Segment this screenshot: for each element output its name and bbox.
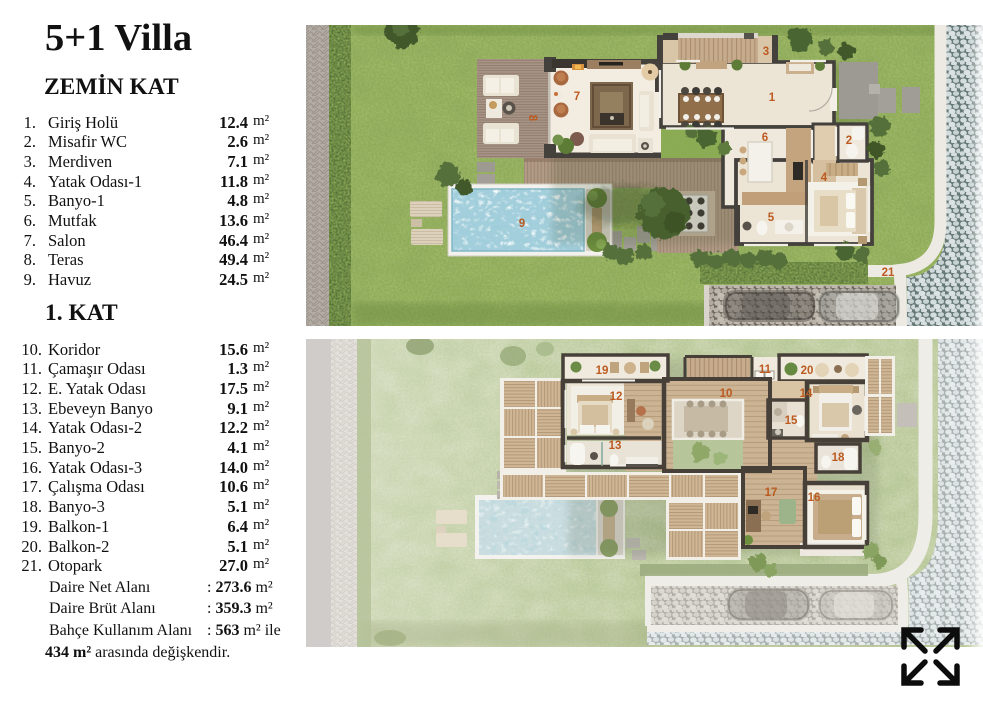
svg-text:7: 7 xyxy=(574,91,580,103)
svg-text:19: 19 xyxy=(596,365,609,377)
svg-text:4: 4 xyxy=(821,172,828,184)
svg-text:1: 1 xyxy=(769,92,776,104)
svg-text:8: 8 xyxy=(526,115,538,122)
svg-text:16: 16 xyxy=(808,492,821,504)
svg-text:17: 17 xyxy=(765,487,778,499)
svg-text:12: 12 xyxy=(610,391,623,403)
svg-text:21: 21 xyxy=(882,267,895,279)
svg-text:13: 13 xyxy=(609,440,622,452)
svg-text:18: 18 xyxy=(832,452,845,464)
svg-text:20: 20 xyxy=(801,365,814,377)
svg-text:5: 5 xyxy=(768,212,775,224)
svg-text:6: 6 xyxy=(762,132,768,144)
svg-text:9: 9 xyxy=(519,218,525,230)
svg-text:10: 10 xyxy=(720,388,733,400)
svg-text:11: 11 xyxy=(759,364,772,376)
svg-text:2: 2 xyxy=(846,135,852,147)
svg-text:14: 14 xyxy=(800,388,813,400)
svg-text:3: 3 xyxy=(763,46,769,58)
svg-text:15: 15 xyxy=(785,415,798,427)
